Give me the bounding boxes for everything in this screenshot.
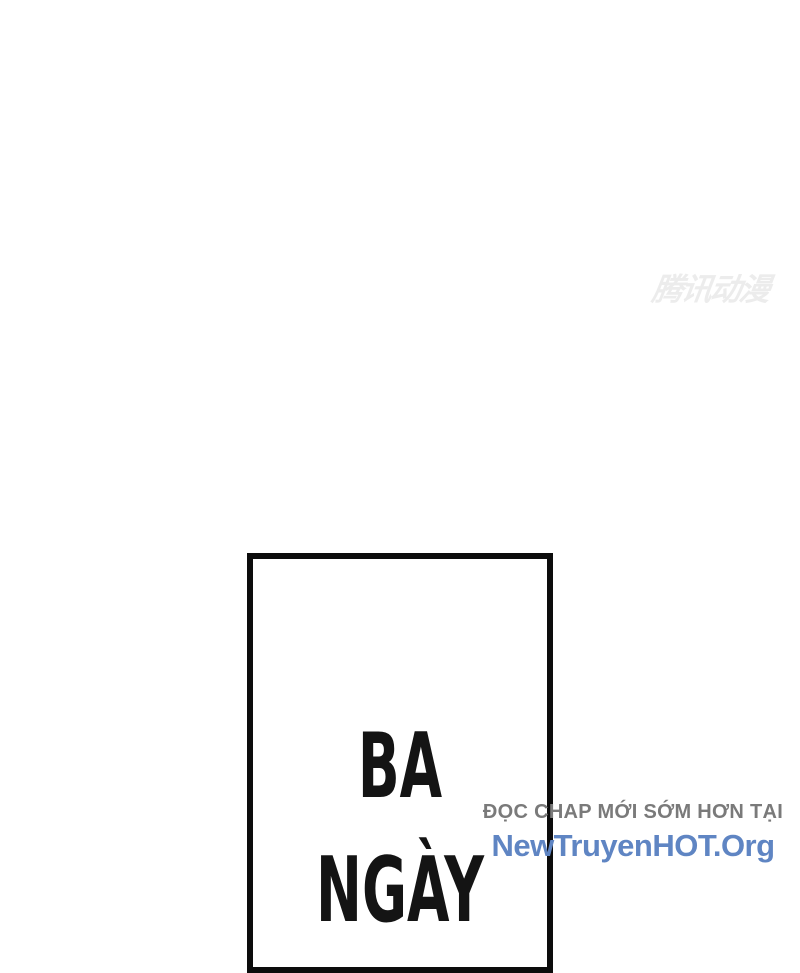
caption-text-line-2: NGÀY xyxy=(310,846,489,936)
tencent-comics-watermark: 腾讯动漫 xyxy=(649,270,800,314)
promo-site-name: NewTruyenHOT.Org xyxy=(491,828,774,864)
caption-text-line-1: BA xyxy=(310,722,489,812)
promo-tagline: ĐỌC CHAP MỚI SỚM HƠN TẠI xyxy=(483,801,783,824)
caption-box: BA NGÀY xyxy=(247,553,553,973)
